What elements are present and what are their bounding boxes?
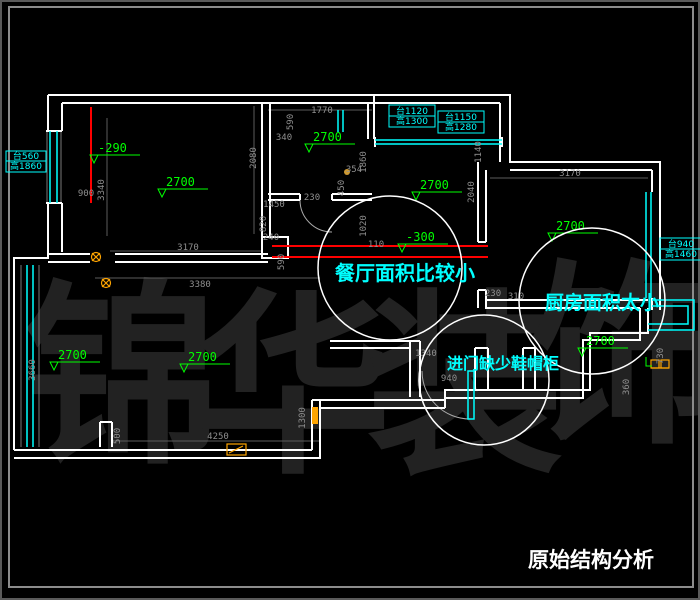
dimension-label: 354 [346, 165, 362, 175]
dimension-label: 900 [78, 189, 94, 199]
page-title: 原始结构分析 [528, 548, 654, 572]
dimension-label: 3660 [28, 359, 38, 381]
dimension-label: 360 [622, 379, 632, 395]
dimension-label: 3380 [189, 280, 211, 290]
dimension-label: 340 [276, 133, 292, 143]
dimension-label: 500 [113, 428, 123, 444]
dimension-label: 1020 [359, 215, 369, 237]
dimension-label: 1450 [263, 200, 285, 210]
floor-plan-canvas: 锦 华 装 饰 [0, 0, 700, 600]
elevation-text: -300 [406, 230, 435, 244]
dimension-label: 4250 [207, 432, 229, 442]
elevation-text: 2700 [420, 178, 449, 192]
dimension-label: 240 [263, 233, 279, 243]
annotation-dining: 餐厅面积比较小 [335, 261, 475, 285]
dimension-label: 940 [441, 374, 457, 384]
spec-sill: 台940 [668, 238, 694, 250]
spec-height: 高1460 [665, 248, 697, 260]
elevation-text: 2700 [586, 334, 615, 348]
spec-height: 高1300 [396, 115, 428, 127]
spec-sill: 台1150 [445, 111, 477, 123]
dimension-label: 2080 [249, 147, 259, 169]
spec-height: 高1280 [445, 121, 477, 133]
elevation-text: 2700 [58, 348, 87, 362]
elevation-text: 2700 [188, 350, 217, 364]
cad-floorplan-screenshot: 锦 华 装 饰 [0, 0, 700, 600]
dimension-label: 2040 [467, 181, 477, 203]
dimension-label: 820 [259, 216, 269, 232]
dimension-label: 3170 [559, 169, 581, 179]
spec-sill: 台560 [13, 150, 39, 162]
dimension-label: 110 [368, 240, 384, 250]
dimension-label: 230 [304, 193, 320, 203]
watermark-char: 华 [195, 272, 391, 502]
dimension-label: 730 [656, 348, 666, 364]
dimension-label: 590 [277, 254, 287, 270]
dimension-label: 3340 [97, 179, 107, 201]
elevation-text: -290 [98, 141, 127, 155]
dimension-label: 310 [508, 292, 524, 302]
spec-height: 高1860 [10, 160, 42, 172]
annotation-entry: 进门缺少鞋帽柜 [447, 354, 559, 373]
radiator-symbol [312, 407, 318, 424]
dimension-label: 450 [337, 180, 347, 196]
elevation-text: 2700 [166, 175, 195, 189]
dimension-label: 3170 [177, 243, 199, 253]
dimension-label: 1300 [298, 407, 308, 429]
annotation-kitchen: 厨房面积太小 [545, 291, 659, 314]
dimension-label: 590 [286, 114, 296, 130]
spec-sill: 台1120 [396, 105, 428, 117]
dimension-label: 230 [485, 289, 501, 299]
dimension-label: 1140 [474, 141, 484, 163]
dimension-label: 1770 [311, 106, 333, 116]
elevation-text: 2700 [313, 130, 342, 144]
